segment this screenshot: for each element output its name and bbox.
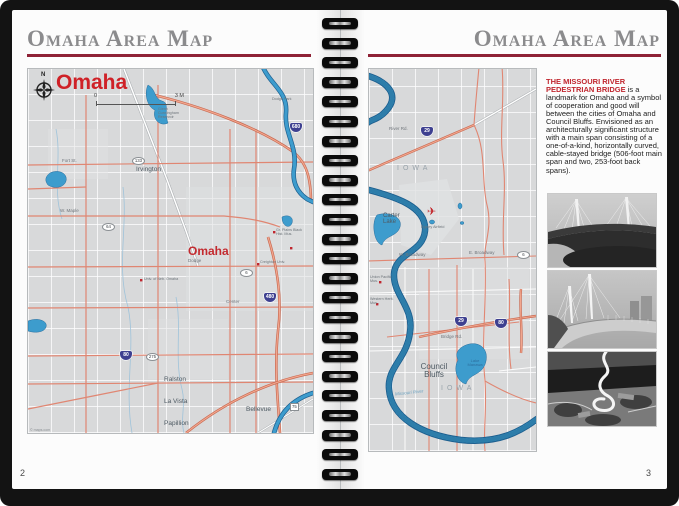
bridge-photo-deck bbox=[547, 270, 657, 349]
map-label-irvington: Irvington bbox=[136, 167, 161, 174]
scale-tick-start bbox=[96, 101, 97, 106]
spiral-loop bbox=[322, 194, 358, 205]
map-label-bellevue: Bellevue bbox=[246, 407, 271, 414]
spiral-loop bbox=[322, 332, 358, 343]
left-title-rule bbox=[27, 54, 311, 57]
map-label-creighton: Creighton Univ. bbox=[260, 260, 286, 264]
map-label-western-herit: Western Herit. Mus. bbox=[370, 297, 398, 305]
scale-end-label: 3 M bbox=[175, 93, 184, 99]
map-label-la-vista: La Vista bbox=[164, 399, 187, 406]
article-lead: THE MISSOURI RIVER PEDESTRIAN BRIDGE bbox=[546, 77, 626, 94]
spiral-loop bbox=[322, 449, 358, 460]
left-page-number: 2 bbox=[20, 468, 25, 478]
spiral-loop bbox=[322, 214, 358, 225]
shield-us275: 275 bbox=[146, 353, 159, 361]
map-label-omaha-center: Omaha bbox=[188, 245, 229, 258]
map-label-center: Center bbox=[226, 300, 240, 305]
spiral-loop bbox=[322, 292, 358, 303]
map-label-e-broadway: E. Broadway bbox=[469, 251, 495, 256]
spiral-loop bbox=[322, 175, 358, 186]
spiral-loop bbox=[322, 410, 358, 421]
map-label-gr-plains: Gr. Plains Black Hist. Mus. bbox=[276, 228, 308, 236]
shield-ne133: 133 bbox=[132, 157, 145, 165]
map-label-papillion: Papillion bbox=[164, 421, 189, 428]
right-title-rule bbox=[368, 54, 661, 57]
shield-ne64: 64 bbox=[102, 223, 115, 231]
bridge-article: THE MISSOURI RIVER PEDESTRIAN BRIDGE is … bbox=[546, 78, 662, 175]
bridge-photo-elevation bbox=[547, 193, 657, 268]
spiral-loop bbox=[322, 312, 358, 323]
spiral-loop bbox=[322, 57, 358, 68]
spiral-loop bbox=[322, 77, 358, 88]
article-body: is a landmark for Omaha and a symbol of … bbox=[546, 85, 662, 175]
scale-tick-end bbox=[175, 101, 176, 106]
spiral-loop bbox=[322, 469, 358, 480]
map-scale-bar: 0 3 M bbox=[94, 95, 178, 107]
map-credit: © maps.com bbox=[30, 428, 50, 432]
right-page-number: 3 bbox=[646, 468, 651, 478]
bridge-aerial-graphic bbox=[548, 352, 656, 426]
scale-bar-line bbox=[96, 104, 176, 105]
airport-plane-icon: ✈ bbox=[427, 205, 436, 218]
compass-rose-icon: N bbox=[32, 73, 56, 103]
map-label-fort-st: Fort St. bbox=[62, 159, 77, 164]
left-page-title: Omaha Area Map bbox=[27, 26, 213, 52]
spiral-loop bbox=[322, 136, 358, 147]
spiral-loop bbox=[322, 253, 358, 264]
spiral-loop bbox=[322, 390, 358, 401]
map-label-cunningham: Glenn Cunningham Reservoir bbox=[158, 107, 186, 119]
shield-us75: 75 bbox=[290, 403, 299, 411]
bridge-elevation-graphic bbox=[548, 194, 656, 267]
spiral-loop bbox=[322, 38, 358, 49]
spiral-loop bbox=[322, 430, 358, 441]
map-label-bridge-rd: Bridge Rd. bbox=[441, 335, 462, 340]
map-label-ralston: Ralston bbox=[164, 377, 186, 384]
map-label-w-broadway: W. Broadway bbox=[399, 253, 426, 258]
map-label-dodge: Dodge bbox=[188, 259, 201, 264]
map-label-union-pacific: Union Pacific Mus. bbox=[370, 275, 398, 283]
spiral-loop bbox=[322, 351, 358, 362]
bridge-photo-aerial bbox=[547, 351, 657, 427]
spiral-loop bbox=[322, 116, 358, 127]
map-label-dodge-park: Dodge Park bbox=[272, 97, 302, 101]
atlas-book: Omaha Area Map bbox=[0, 0, 679, 506]
map-label-river-rd: River Rd. bbox=[389, 127, 408, 132]
map-label-iowa-bottom: IOWA bbox=[441, 385, 475, 392]
spiral-loop bbox=[322, 371, 358, 382]
shield-us6: 6 bbox=[240, 269, 253, 277]
map-label-w-maple: W. Maple bbox=[60, 209, 79, 214]
scale-start-label: 0 bbox=[94, 93, 97, 99]
bridge-deck-graphic bbox=[548, 271, 656, 348]
right-page-title: Omaha Area Map bbox=[474, 26, 660, 52]
map-label-iowa-top: IOWA bbox=[397, 165, 431, 172]
map-label-council-bluffs: Council Bluffs bbox=[413, 363, 455, 380]
shield-us6-right: 6 bbox=[517, 251, 530, 259]
omaha-area-map-left: N Omaha 0 3 M Dodge Park Glenn Cunningha… bbox=[27, 68, 314, 434]
map-city-title: Omaha bbox=[56, 71, 127, 95]
compass-rose-graphic bbox=[32, 78, 56, 102]
spiral-loop bbox=[322, 155, 358, 166]
map-label-lake-manawa: Lake Manawa bbox=[463, 359, 487, 368]
omaha-area-map-right: River Rd. IOWA Carter Lake ✈ Eppley Airf… bbox=[368, 68, 537, 452]
map-label-univ-neb: Univ. of Neb. Omaha bbox=[144, 277, 186, 281]
spiral-loop bbox=[322, 18, 358, 29]
map-label-carter-lake: Carter Lake bbox=[383, 213, 409, 226]
spiral-loop bbox=[322, 96, 358, 107]
map-label-eppley: Eppley Airfield bbox=[421, 225, 447, 229]
spiral-loop bbox=[322, 234, 358, 245]
spiral-loop bbox=[322, 273, 358, 284]
